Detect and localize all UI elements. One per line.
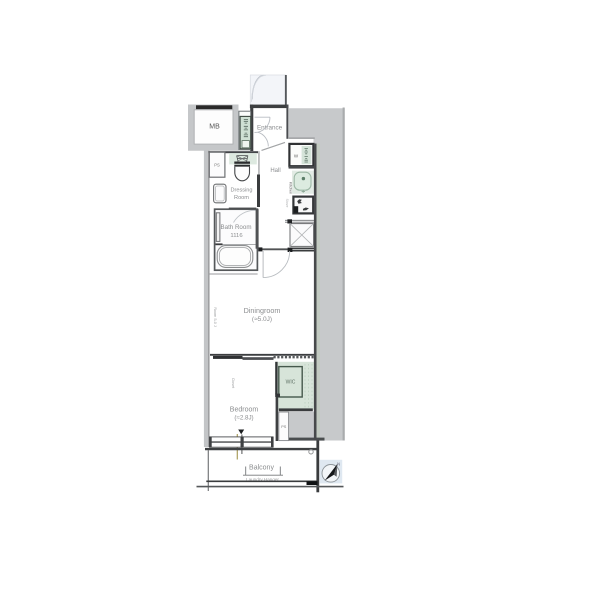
svg-text:Room: Room — [234, 195, 249, 201]
svg-text:Bath Room: Bath Room — [221, 224, 252, 231]
svg-text:Diningroom: Diningroom — [244, 306, 281, 315]
svg-text:(≈2.8J): (≈2.8J) — [234, 415, 253, 422]
svg-text:Stove: Stove — [285, 199, 289, 208]
svg-text:Hall: Hall — [270, 168, 280, 174]
svg-text:MB: MB — [209, 123, 220, 130]
svg-text:Dressing: Dressing — [230, 188, 252, 194]
svg-text:1116: 1116 — [230, 233, 243, 239]
svg-text:Closet: Closet — [231, 378, 235, 388]
svg-text:Balcony: Balcony — [249, 465, 274, 472]
svg-text:Room 5-0 J: Room 5-0 J — [213, 307, 217, 327]
svg-text:PS: PS — [281, 425, 287, 429]
svg-text:N: N — [337, 462, 340, 467]
svg-text:PS: PS — [214, 163, 220, 168]
svg-text:WIC: WIC — [286, 380, 296, 386]
svg-text:(≈5.0J): (≈5.0J) — [252, 316, 272, 323]
svg-text:Kitchen: Kitchen — [288, 182, 292, 194]
svg-text:Entrance: Entrance — [257, 124, 283, 131]
svg-text:Bedroom: Bedroom — [230, 407, 259, 414]
